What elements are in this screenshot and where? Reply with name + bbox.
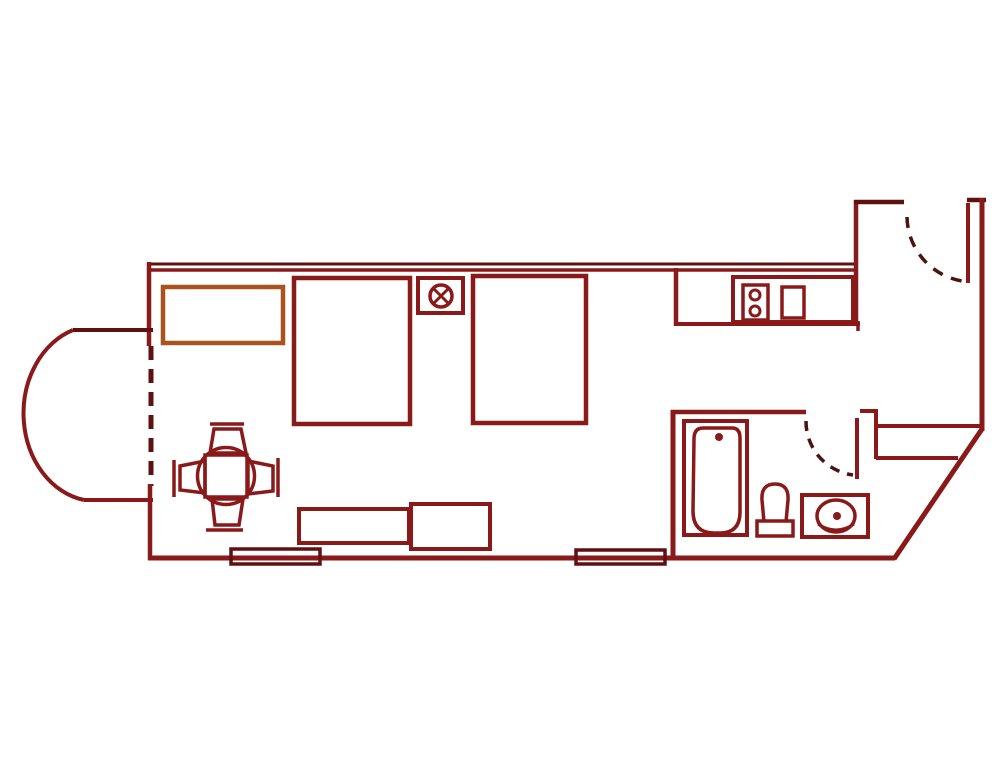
vanity-drain xyxy=(833,512,841,520)
toilet-bowl xyxy=(762,484,788,522)
bathtub-basin xyxy=(693,428,740,533)
bench-long xyxy=(299,509,409,543)
floorplan-svg xyxy=(0,0,1000,781)
entry-door-swing xyxy=(907,217,962,281)
floorplan-page xyxy=(0,0,1000,781)
stove-burner-top xyxy=(750,290,760,300)
dining-table-mat xyxy=(205,455,247,497)
bed-2 xyxy=(473,276,586,423)
bathroom-door-swing xyxy=(806,421,853,475)
bay-curved-wall xyxy=(24,330,84,500)
bench-short xyxy=(411,504,490,549)
kitchen-sink xyxy=(782,287,804,318)
toilet-base xyxy=(757,521,793,536)
bed-1 xyxy=(294,278,410,424)
storage-cabinet xyxy=(163,287,283,343)
diagonal-wall xyxy=(894,429,982,559)
stove-burner-bottom xyxy=(750,306,760,316)
bathtub-drain xyxy=(715,433,723,441)
